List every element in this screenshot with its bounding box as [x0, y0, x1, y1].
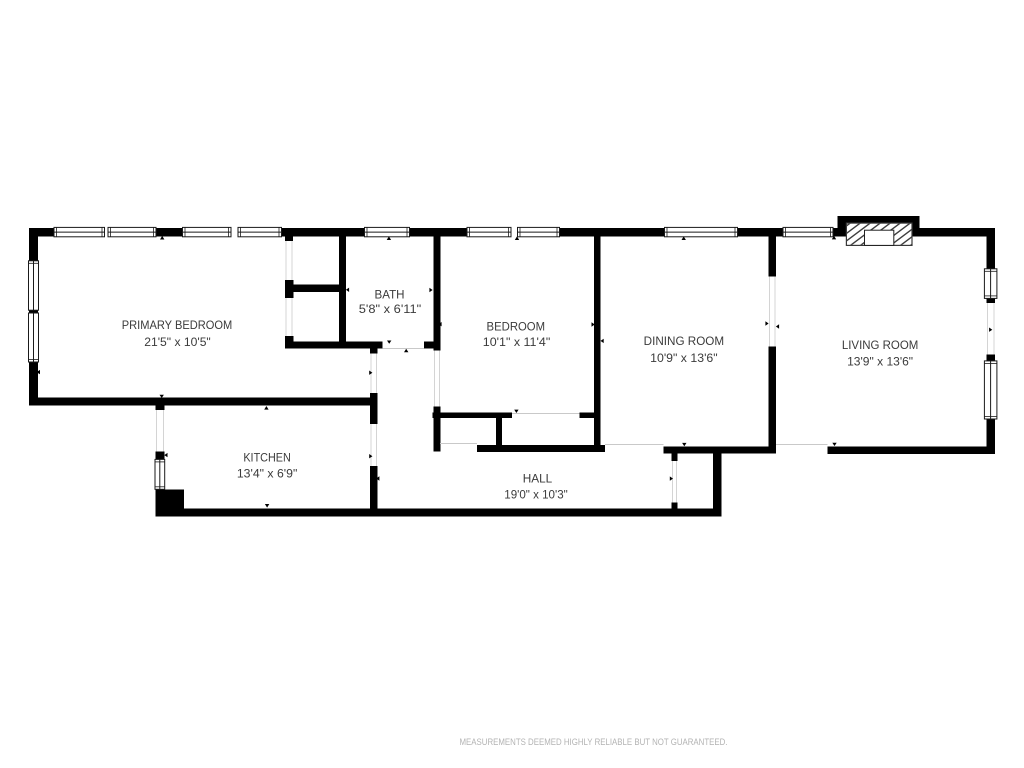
svg-text:13'4" x 6'9": 13'4" x 6'9" [237, 467, 298, 481]
svg-text:BEDROOM: BEDROOM [487, 319, 546, 333]
svg-text:10'1" x 11'4": 10'1" x 11'4" [483, 335, 551, 349]
svg-text:BATH: BATH [375, 288, 405, 302]
svg-text:HALL: HALL [523, 472, 553, 486]
svg-text:MEASUREMENTS DEEMED HIGHLY REL: MEASUREMENTS DEEMED HIGHLY RELIABLE BUT … [460, 736, 728, 747]
svg-text:LIVING ROOM: LIVING ROOM [842, 338, 919, 352]
svg-text:10'9" x 13'6": 10'9" x 13'6" [650, 351, 718, 365]
svg-text:DINING ROOM: DINING ROOM [644, 334, 725, 348]
svg-text:PRIMARY BEDROOM: PRIMARY BEDROOM [122, 318, 233, 332]
svg-text:13'9" x 13'6": 13'9" x 13'6" [847, 355, 913, 369]
svg-text:5'8" x 6'11": 5'8" x 6'11" [359, 302, 422, 316]
svg-text:19'0" x 10'3": 19'0" x 10'3" [504, 488, 568, 502]
svg-text:KITCHEN: KITCHEN [243, 451, 291, 465]
svg-text:21'5" x 10'5": 21'5" x 10'5" [144, 335, 211, 349]
